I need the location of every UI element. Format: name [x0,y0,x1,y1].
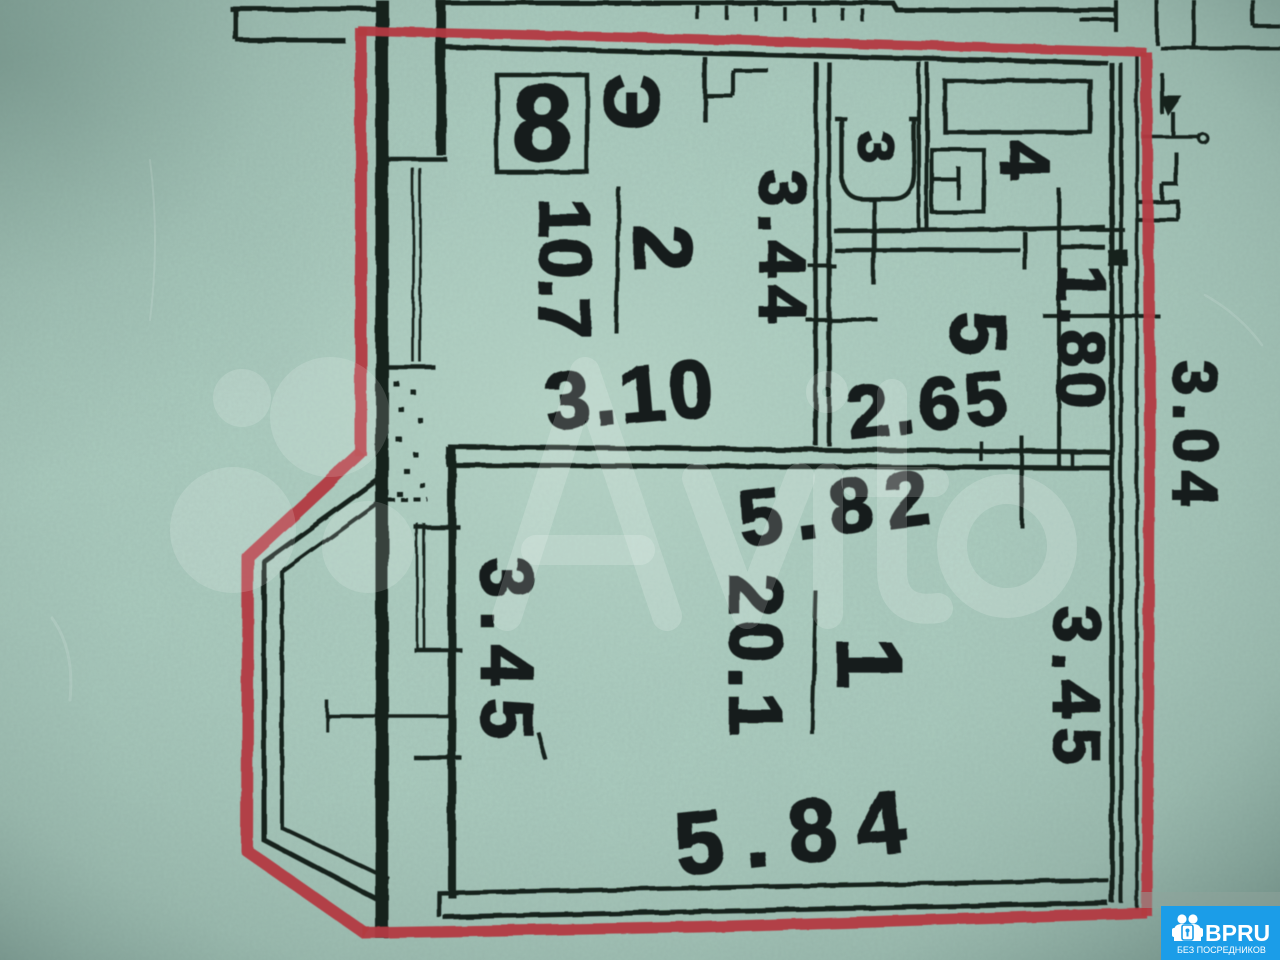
svg-text:8: 8 [512,62,572,183]
svg-text:3.44: 3.44 [746,170,820,330]
svg-text:10.7: 10.7 [524,198,604,338]
svg-text:З: З [848,131,904,162]
svg-text:1.80: 1.80 [1045,265,1119,413]
svg-text:4: 4 [986,141,1064,180]
svg-text:BPRU: BPRU [1205,920,1270,946]
svg-text:3.04: 3.04 [1160,361,1229,514]
svg-text:Э: Э [588,74,676,130]
svg-text:1: 1 [818,637,920,688]
svg-text:БЕЗ ПОСРЕДНИКОВ: БЕЗ ПОСРЕДНИКОВ [1177,945,1266,955]
svg-text:2.65: 2.65 [843,355,1015,455]
svg-text:3.45: 3.45 [1040,606,1114,774]
svg-text:5: 5 [935,311,1023,354]
svg-text:2: 2 [617,225,708,271]
